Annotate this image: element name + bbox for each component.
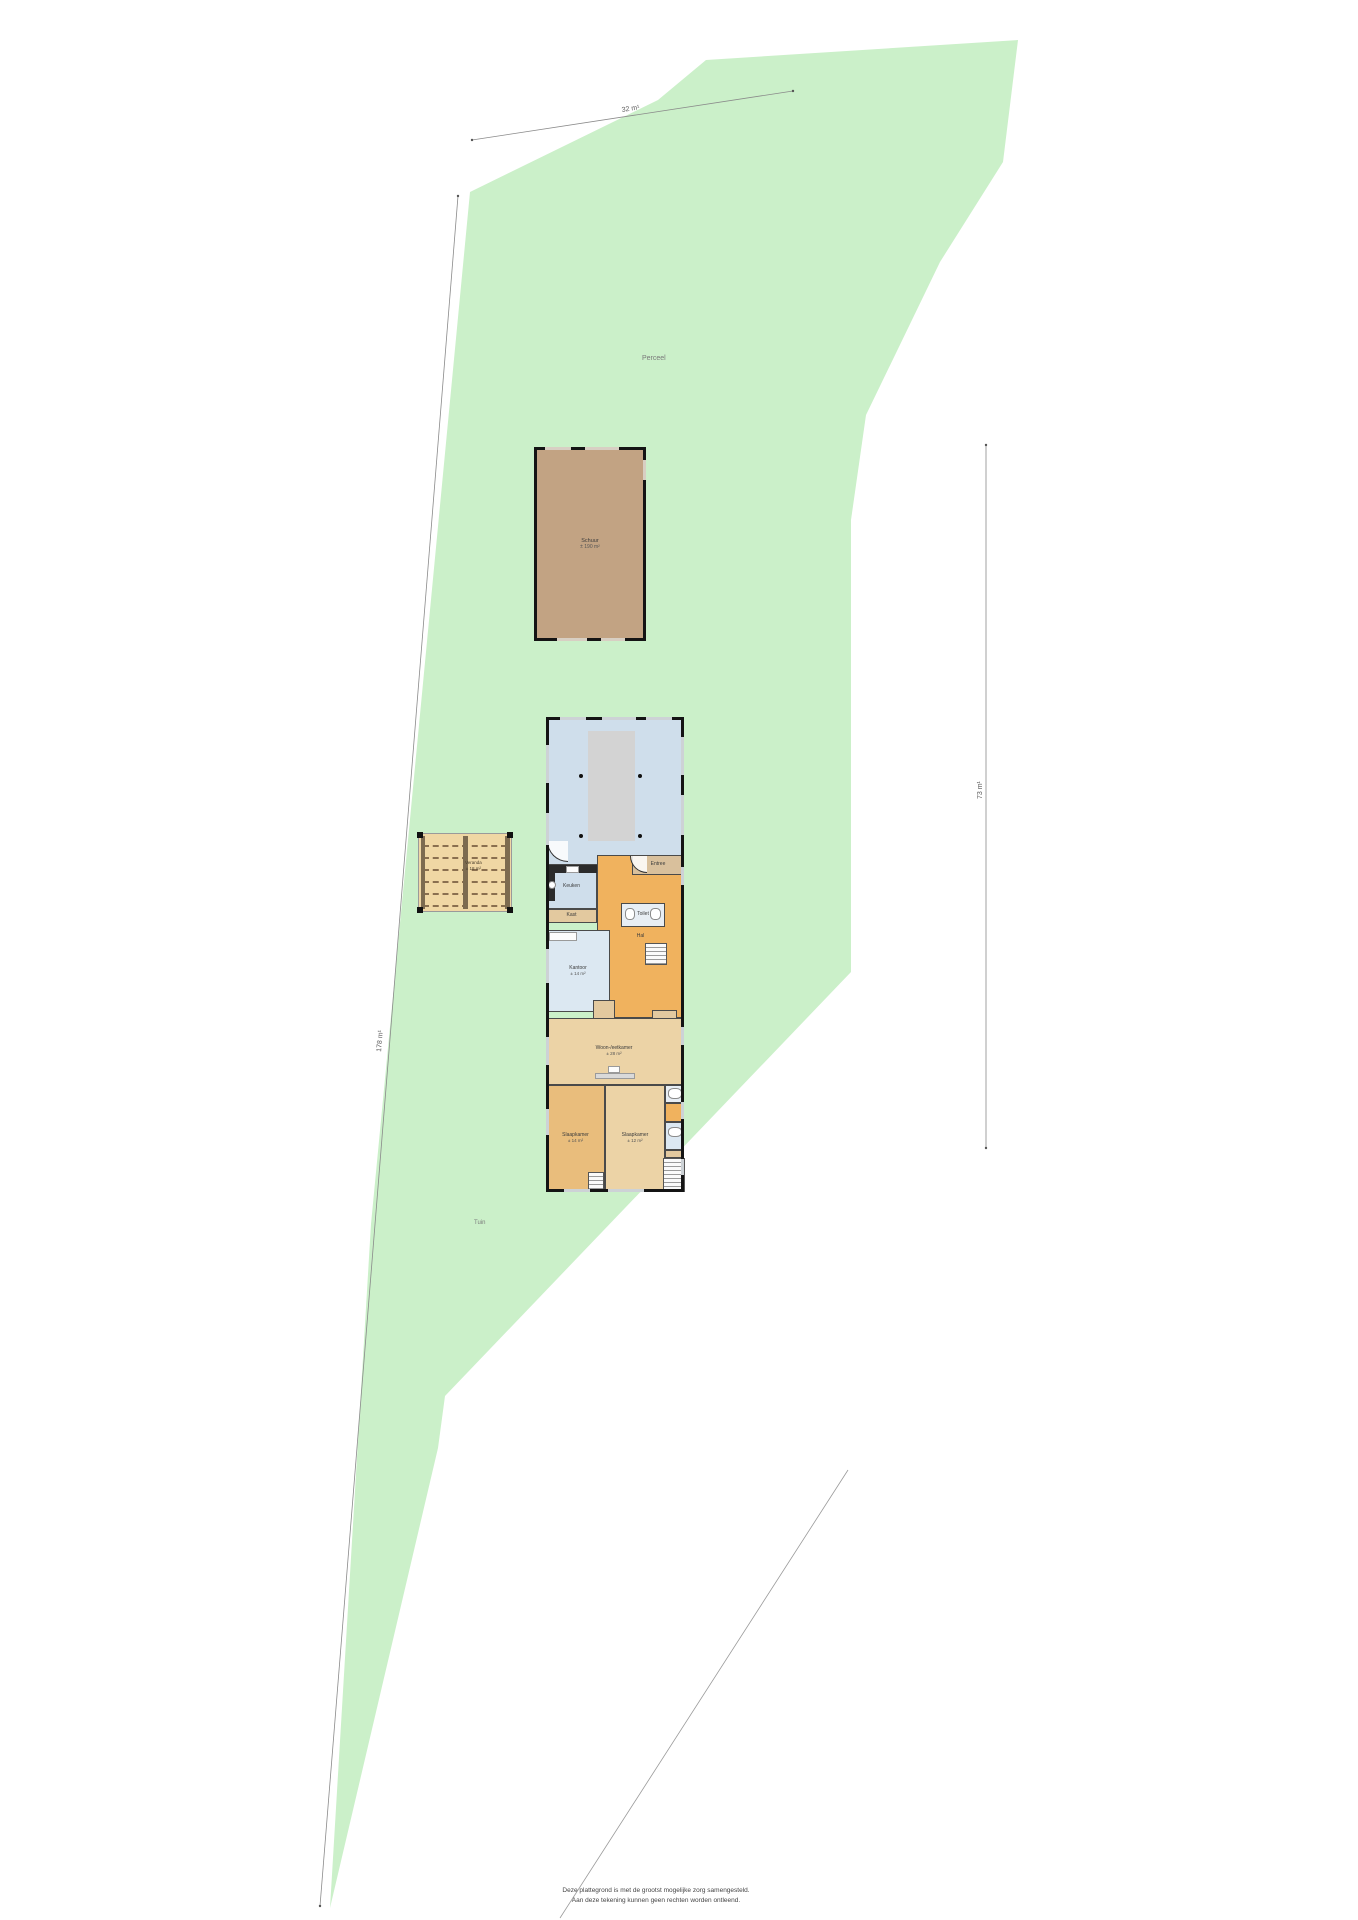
deck-corner-post [507,832,513,838]
barn-window-right [643,460,646,480]
site-plan-canvas: 32 m¹ 178 m¹ 73 m¹ Perceel Tuin Schuur ±… [0,0,1358,1920]
window [546,1037,549,1065]
boundary-line-bottom-right [560,1470,848,1918]
dim-end-dot [319,1905,321,1907]
veranda-label-group: Veranda ± 18 m² [465,860,482,871]
wall-table [595,1073,635,1079]
kitchen-sink-icon [548,881,556,889]
living-room-rug [588,731,635,841]
column-post [638,834,642,838]
window [560,717,586,720]
dimension-label-left: 178 m¹ [376,1029,385,1052]
window [546,813,549,845]
veranda-label: Veranda [465,860,482,865]
staircase-hall [645,943,667,965]
window [564,1189,590,1192]
window [546,949,549,983]
window [681,795,684,835]
window [546,1109,549,1135]
window [602,717,636,720]
toilet-bowl-icon [625,908,635,920]
deck-post-center [463,836,468,909]
caption: Deze plattegrond is met de grootst mogel… [480,1886,832,1906]
barn-door-top [545,447,571,450]
bathroom-toilet-icon [668,1088,682,1099]
barn-window-bottom [601,638,625,641]
room-kast-1: Kast [546,909,597,923]
barn-area: ± 190 m² [580,544,600,550]
dim-end-dot [792,90,794,92]
deck-post-left [421,836,425,909]
house-building: Woonkamer± 62 m²HalEntreeKeukenKastToile… [546,717,684,1192]
barn-label: Schuur [580,538,600,545]
deck-corner-post [507,907,513,913]
office-counter [549,932,577,941]
window [681,867,684,885]
wall-right [681,717,684,1192]
room-label: Hal [637,934,645,939]
dim-end-dot [457,195,459,197]
garden-label: Tuin [474,1220,485,1226]
dimension-label-right: 73 m¹ [977,780,984,799]
veranda-deck: Veranda ± 18 m² [418,833,512,912]
room-area: ± 14 m² [568,1139,583,1144]
window [546,745,549,783]
room-area: ± 14 m² [570,972,585,977]
room-label: Keuken [563,884,580,889]
deck-corner-post [417,907,423,913]
caption-line-1: Deze plattegrond is met de grootst mogel… [480,1886,832,1896]
dim-end-dot [471,139,473,141]
column-post [579,834,583,838]
veranda-area: ± 18 m² [465,866,482,871]
column-post [638,774,642,778]
room-area: ± 28 m² [606,1052,621,1057]
barn-building: Schuur ± 190 m² [534,447,646,641]
window [646,717,672,720]
barn-door-bottom [557,638,587,641]
room-label: Toilet [637,912,649,917]
kitchen-stove-icon [566,866,579,873]
room-hal: Hal [597,855,684,1018]
bathroom-sink-icon [668,1127,682,1137]
deck-post-right [505,836,510,909]
column-post [579,774,583,778]
window [681,1027,684,1045]
dim-end-dot [985,1147,987,1149]
deck-corner-post [417,832,423,838]
wall-cabinet [608,1066,620,1073]
window [681,1159,684,1175]
window [681,1102,684,1119]
parcel-label: Perceel [642,355,666,362]
barn-window-top [585,447,619,450]
toilet-sink-icon [650,908,661,920]
caption-line-2: Aan deze tekening kunnen geen rechten wo… [480,1896,832,1906]
room-label: Entree [651,862,666,867]
window [608,1189,644,1192]
dim-end-dot [985,444,987,446]
room-area: ± 12 m² [627,1139,642,1144]
window [681,737,684,775]
barn-label-group: Schuur ± 190 m² [580,538,600,551]
room-label: Kast [566,913,576,918]
room-slaapkamer-2: Slaapkamer± 12 m² [605,1085,665,1192]
